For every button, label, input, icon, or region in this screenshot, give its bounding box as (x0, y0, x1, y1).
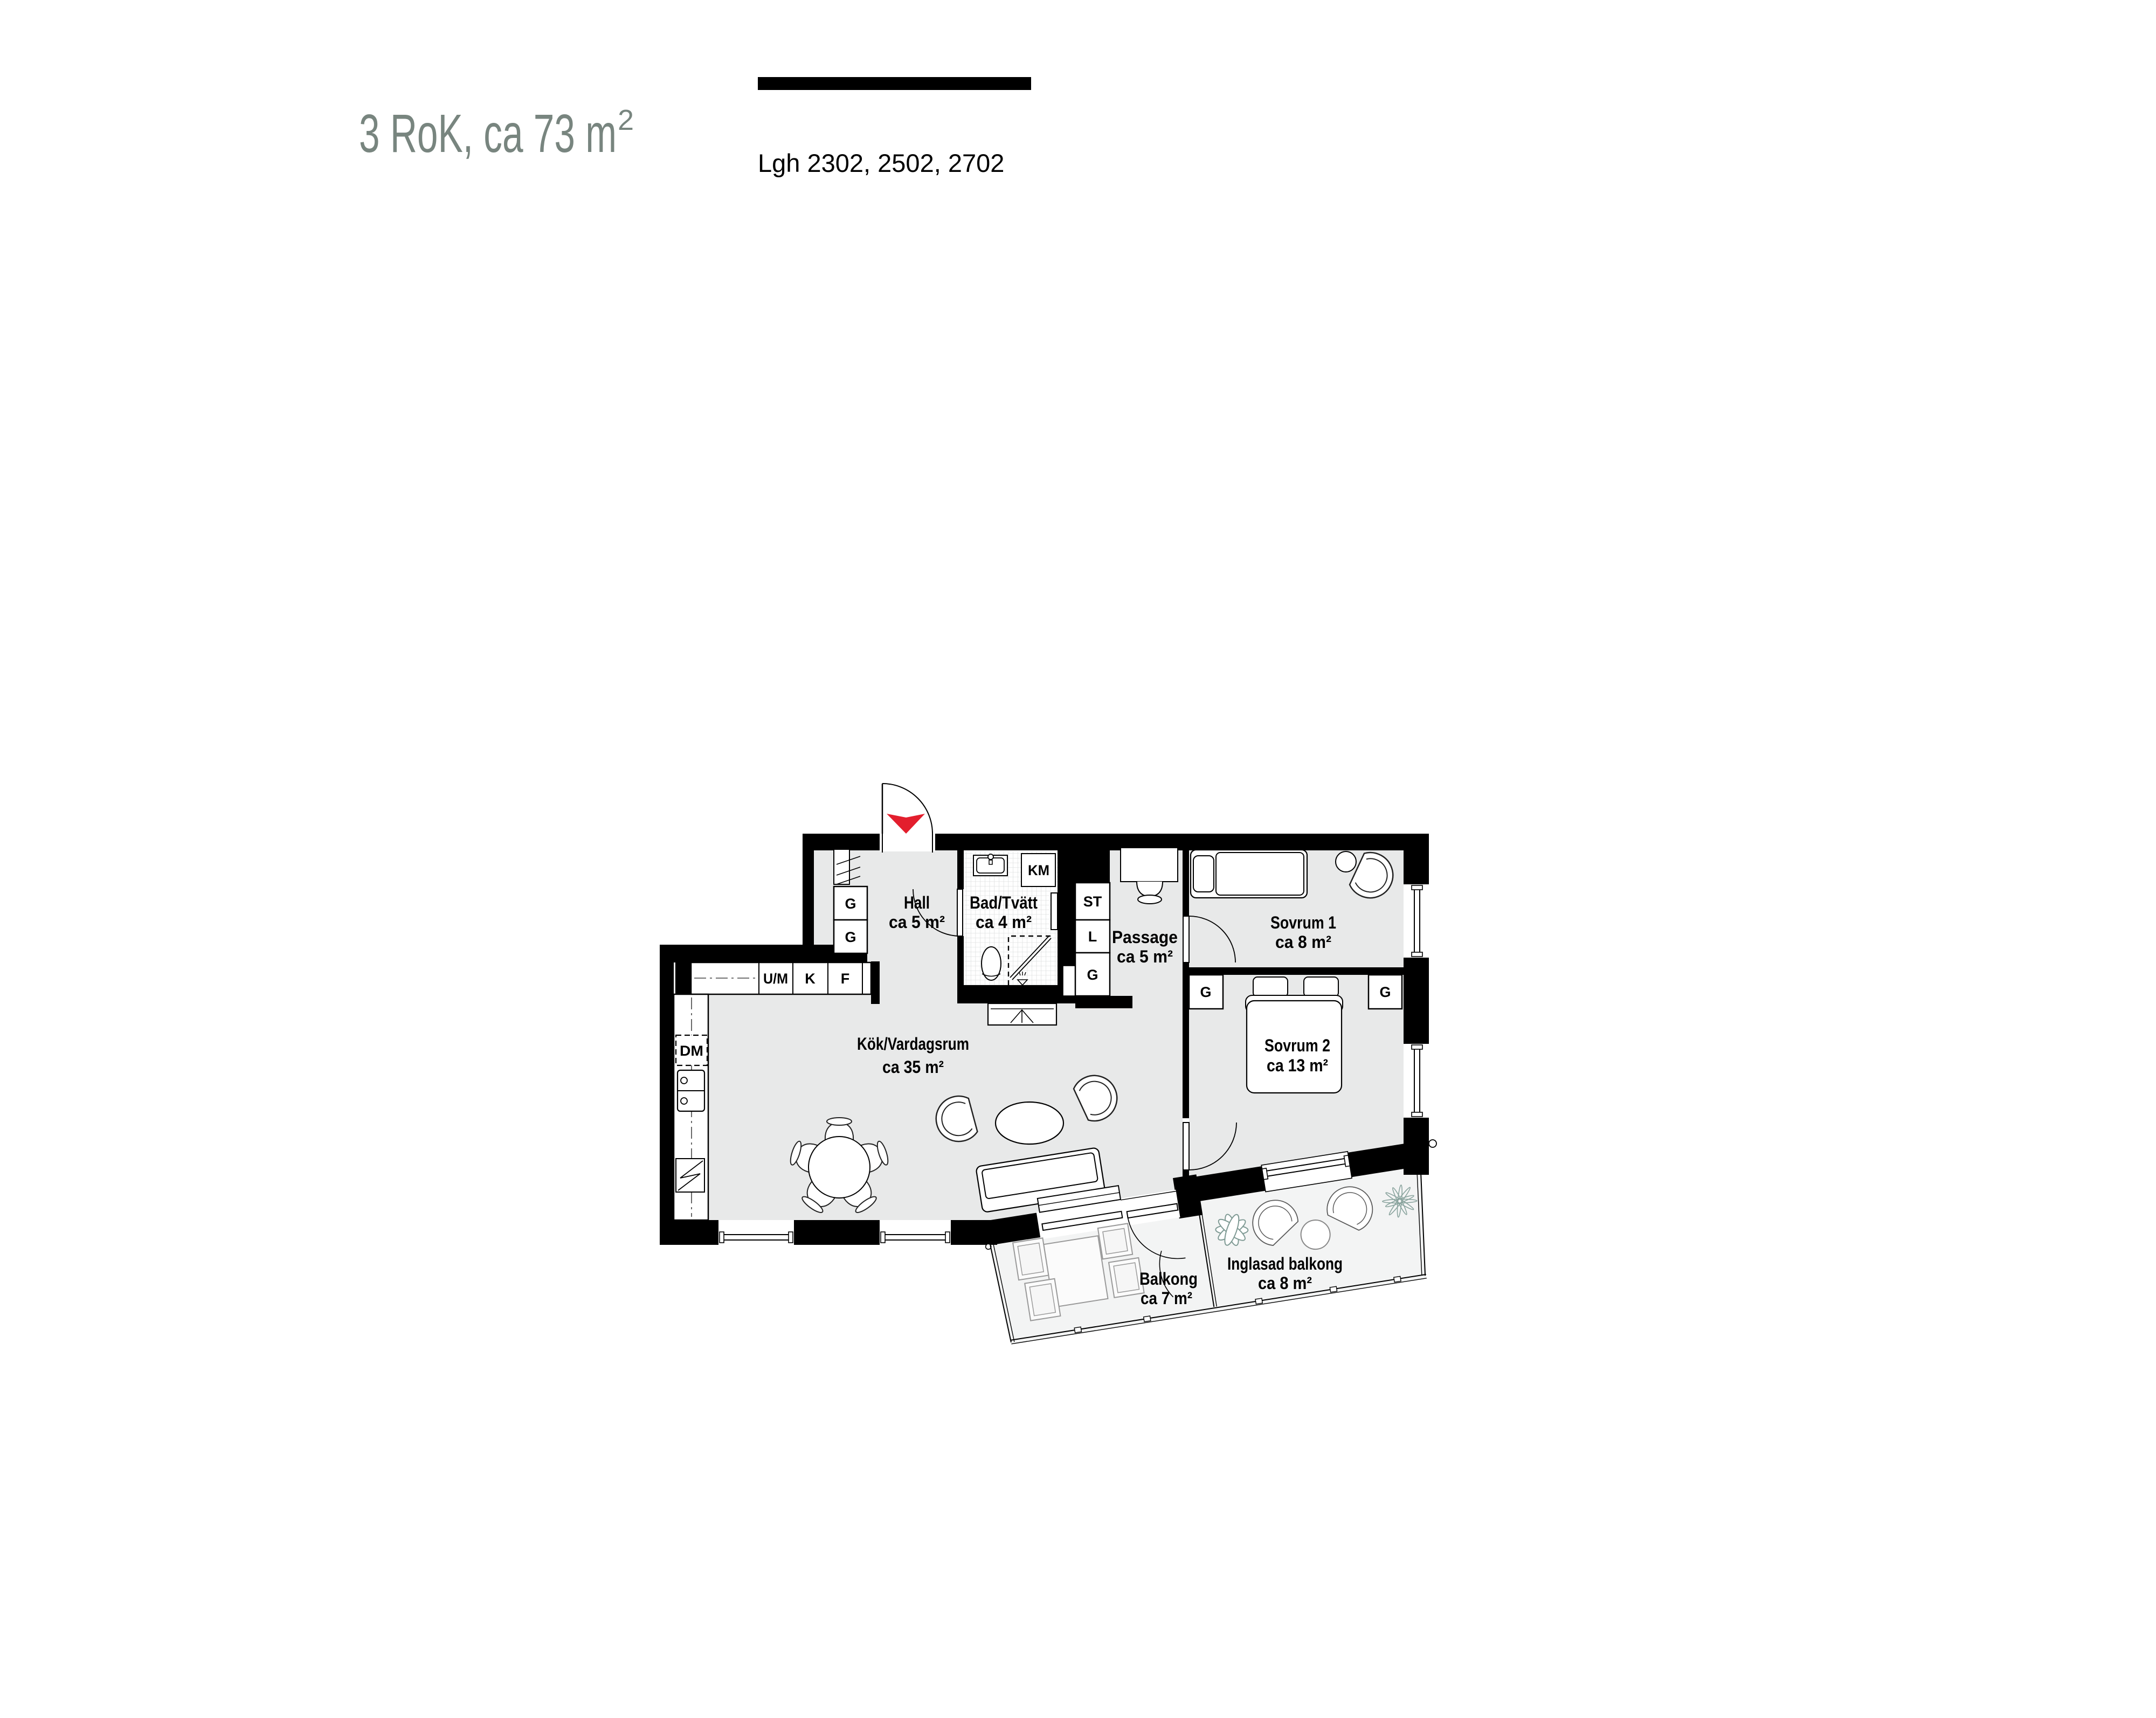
svg-text:Bad/Tvätt: Bad/Tvätt (970, 893, 1038, 912)
svg-text:3 RoK, ca 73 m: 3 RoK, ca 73 m (359, 103, 617, 164)
svg-text:K: K (805, 971, 816, 987)
svg-text:2: 2 (618, 104, 634, 136)
svg-text:KM: KM (1028, 862, 1049, 878)
svg-text:G: G (845, 929, 856, 945)
svg-text:F: F (841, 971, 850, 987)
svg-text:G: G (845, 896, 856, 912)
svg-text:Sovrum 2: Sovrum 2 (1264, 1036, 1330, 1055)
svg-text:G: G (1087, 967, 1098, 983)
svg-text:ca 7 m²: ca 7 m² (1141, 1288, 1192, 1308)
svg-text:Lgh 2302, 2502, 2702: Lgh 2302, 2502, 2702 (758, 149, 1004, 177)
svg-text:Passage: Passage (1112, 927, 1178, 947)
svg-text:G: G (1379, 984, 1391, 1000)
svg-text:ca 8 m²: ca 8 m² (1275, 932, 1331, 952)
svg-text:L: L (1088, 929, 1097, 945)
svg-text:ca 5 m²: ca 5 m² (889, 912, 945, 932)
svg-text:Kök/Vardagsrum: Kök/Vardagsrum (857, 1034, 969, 1054)
svg-text:ca 13 m²: ca 13 m² (1267, 1056, 1328, 1075)
svg-text:ca 5 m²: ca 5 m² (1117, 947, 1173, 966)
svg-text:ca 4 m²: ca 4 m² (976, 912, 1032, 932)
svg-text:ca 8 m²: ca 8 m² (1258, 1273, 1312, 1293)
svg-text:Inglasad balkong: Inglasad balkong (1227, 1254, 1343, 1273)
svg-text:Sovrum 1: Sovrum 1 (1270, 913, 1336, 932)
svg-text:G: G (1200, 984, 1211, 1000)
svg-text:ca 35 m²: ca 35 m² (882, 1057, 944, 1077)
svg-text:Hall: Hall (904, 893, 930, 912)
svg-text:ST: ST (1083, 893, 1102, 910)
svg-text:DM: DM (680, 1043, 703, 1059)
svg-text:Balkong: Balkong (1139, 1269, 1198, 1288)
svg-text:U/M: U/M (763, 971, 788, 987)
